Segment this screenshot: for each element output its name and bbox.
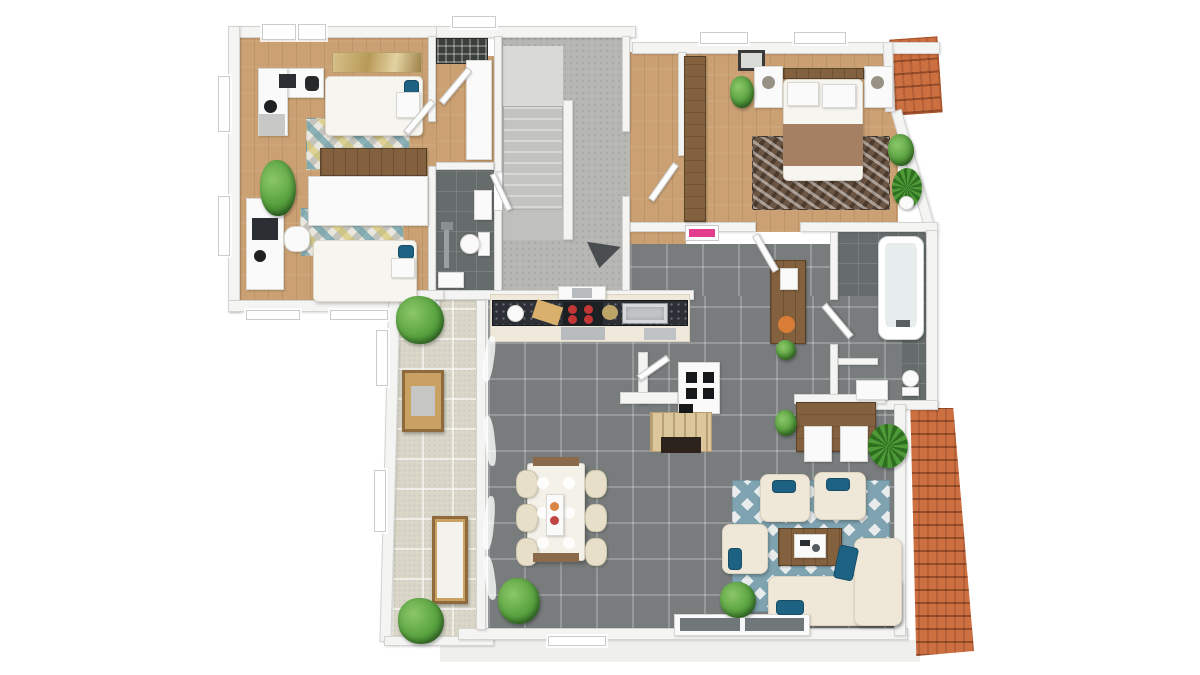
wall-art-pink bbox=[686, 226, 718, 240]
bench-cushion bbox=[437, 522, 463, 598]
window-mid-top bbox=[452, 16, 496, 28]
window-master-top-1 bbox=[700, 32, 748, 44]
window-left-1 bbox=[218, 76, 230, 132]
wall-bath2-left-top bbox=[830, 232, 838, 300]
window-patio-left-1 bbox=[376, 330, 388, 386]
bowl bbox=[602, 305, 618, 320]
chair-mat bbox=[259, 114, 285, 136]
plant-patio-1 bbox=[396, 296, 444, 344]
bed2-pillow-teal bbox=[398, 245, 414, 259]
plant-hall bbox=[776, 340, 796, 360]
window-living-bottom bbox=[548, 636, 606, 646]
plant-bar bbox=[775, 410, 797, 436]
hood-vent bbox=[572, 288, 592, 298]
patio-chair-seat bbox=[411, 386, 435, 416]
toilet1-bowl bbox=[460, 234, 480, 254]
floor-item bbox=[254, 250, 266, 262]
table-runner bbox=[546, 494, 564, 536]
plant-living-2 bbox=[498, 578, 540, 624]
bathtub-inner bbox=[885, 243, 917, 327]
plate bbox=[563, 537, 575, 549]
plate bbox=[563, 507, 575, 519]
window-master-top-2 bbox=[794, 32, 846, 44]
bar-stool bbox=[804, 426, 832, 462]
bathroom1-sink bbox=[474, 190, 492, 220]
coffee-tray bbox=[794, 534, 826, 558]
plant-patio-2 bbox=[398, 598, 444, 644]
burner bbox=[584, 315, 593, 324]
master-headboard bbox=[783, 68, 864, 79]
console-basket bbox=[778, 316, 795, 333]
sofa-chaise bbox=[854, 538, 902, 626]
desk-chair-1 bbox=[305, 76, 319, 91]
fireplace-vent bbox=[686, 388, 697, 399]
wall-art-gold bbox=[332, 52, 422, 73]
plant-master-1 bbox=[730, 76, 754, 108]
fireplace-vent bbox=[703, 388, 714, 399]
dresser bbox=[320, 148, 427, 176]
armchair-pillow bbox=[826, 478, 850, 491]
bed2-pillow bbox=[391, 258, 415, 278]
bowl bbox=[507, 305, 524, 322]
wall-stair-right-top bbox=[622, 36, 630, 132]
table-end bbox=[533, 457, 579, 466]
window-slider-mullion bbox=[740, 618, 745, 631]
wall-stair-right-bottom bbox=[622, 196, 630, 302]
shower-rail bbox=[444, 226, 449, 268]
wall-bath2-divider bbox=[838, 358, 878, 365]
master-wardrobe bbox=[684, 56, 706, 222]
armchair-pillow bbox=[772, 480, 796, 493]
wall-right-bath bbox=[926, 230, 938, 410]
log-opening bbox=[661, 437, 701, 453]
dining-chair bbox=[516, 470, 538, 498]
master-throw bbox=[783, 124, 863, 166]
plate bbox=[563, 477, 575, 489]
plant-kids bbox=[260, 160, 296, 216]
burner bbox=[568, 315, 577, 324]
master-pillow-2 bbox=[822, 84, 856, 108]
plant-master-2 bbox=[888, 134, 914, 166]
kitchen-sink bbox=[622, 303, 668, 324]
master-pillow-1 bbox=[787, 82, 819, 106]
window-kids-bottom-2 bbox=[330, 310, 388, 320]
tray-item bbox=[800, 540, 810, 546]
dining-chair bbox=[585, 538, 607, 566]
tray-item bbox=[812, 544, 820, 552]
window-kids-bottom-1 bbox=[246, 310, 300, 320]
wall-fireplace-h bbox=[620, 392, 678, 404]
wardrobe-low bbox=[308, 176, 428, 226]
runner-item bbox=[550, 502, 559, 511]
fireplace-vent bbox=[686, 372, 697, 383]
burner bbox=[584, 305, 593, 314]
table-end bbox=[533, 553, 579, 562]
window-patio-left-2 bbox=[374, 470, 386, 532]
wall-left bbox=[228, 26, 240, 312]
tub-faucet bbox=[896, 320, 910, 327]
bar-stool bbox=[840, 426, 868, 462]
desk-chair-2 bbox=[284, 226, 310, 252]
staircase bbox=[503, 106, 563, 210]
plate bbox=[537, 477, 549, 489]
lamp-right bbox=[871, 76, 884, 89]
bathroom2-vanity bbox=[856, 380, 888, 400]
burner bbox=[568, 305, 577, 314]
fireplace-vent bbox=[703, 372, 714, 383]
oven-front bbox=[561, 327, 605, 340]
shower-head bbox=[441, 222, 453, 230]
dishwasher-front bbox=[644, 328, 676, 340]
laptop bbox=[279, 74, 296, 88]
toilet2-bowl bbox=[902, 370, 919, 387]
plate bbox=[537, 537, 549, 549]
wall-closet-divider bbox=[436, 162, 494, 170]
stair-upper-block bbox=[503, 46, 563, 106]
wall-closet-right-top bbox=[494, 36, 502, 172]
dining-chair bbox=[585, 504, 607, 532]
wall-stair-rail bbox=[563, 100, 573, 240]
window-kids-top-1 bbox=[262, 24, 296, 40]
window-kids-top-2 bbox=[298, 24, 326, 40]
roof-section-right bbox=[900, 408, 974, 656]
window-left-2 bbox=[218, 196, 230, 256]
side-chair-pillow bbox=[728, 548, 742, 570]
monitor2 bbox=[252, 218, 278, 240]
floor-plan bbox=[0, 0, 1200, 675]
dining-chair bbox=[585, 470, 607, 498]
wall-master-bottom-right bbox=[800, 222, 938, 232]
console-towels bbox=[780, 268, 798, 290]
plant-pot-master bbox=[899, 196, 914, 210]
exterior-apron bbox=[440, 640, 920, 662]
fireplace-slot bbox=[679, 404, 693, 413]
wall-closet-right-bottom bbox=[494, 210, 502, 302]
wall-kids-right-bottom bbox=[428, 166, 436, 302]
laundry-box bbox=[438, 272, 464, 288]
toilet2-tank bbox=[902, 387, 919, 396]
plant-living-1 bbox=[720, 582, 756, 618]
palm-living bbox=[868, 424, 908, 468]
sofa-pillow bbox=[776, 600, 804, 615]
stair-landing bbox=[503, 210, 563, 240]
lamp-left bbox=[762, 76, 775, 89]
closet-wardrobe bbox=[466, 60, 492, 160]
runner-item bbox=[550, 516, 559, 525]
dining-chair bbox=[516, 504, 538, 532]
pc-item bbox=[264, 100, 277, 113]
